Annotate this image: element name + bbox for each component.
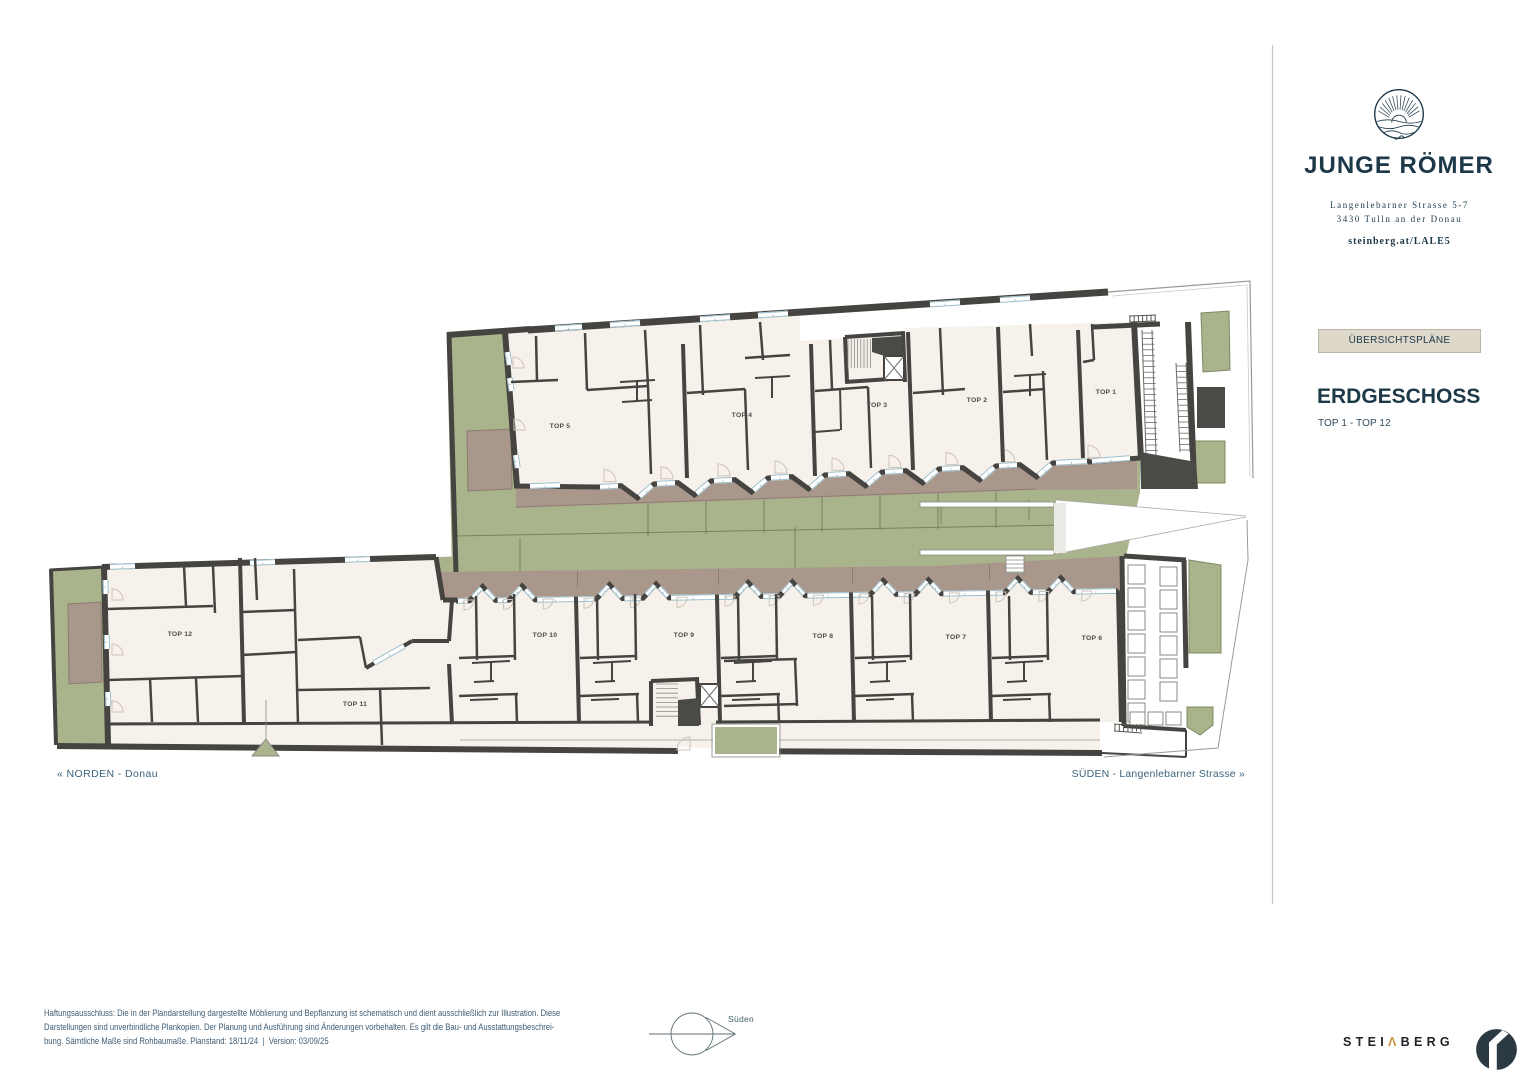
svg-text:TOP 3: TOP 3 [867,402,888,409]
svg-text:TOP 5: TOP 5 [550,423,571,430]
svg-text:TOP 6: TOP 6 [1082,635,1103,642]
svg-text:TOP 7: TOP 7 [946,634,967,641]
svg-text:TOP 11: TOP 11 [343,701,367,708]
svg-text:TOP 8: TOP 8 [813,633,834,640]
svg-text:SÜDEN - Langenlebarner Strasse: SÜDEN - Langenlebarner Strasse » [1072,768,1245,780]
svg-text:TOP 10: TOP 10 [533,632,558,639]
svg-text:TOP 9: TOP 9 [674,632,695,639]
svg-text:TOP 2: TOP 2 [967,397,988,404]
svg-text:TOP 4: TOP 4 [732,412,753,419]
svg-text:« NORDEN - Donau: « NORDEN - Donau [57,768,158,780]
svg-text:TOP 12: TOP 12 [168,631,193,638]
svg-text:TOP 1: TOP 1 [1096,389,1117,396]
